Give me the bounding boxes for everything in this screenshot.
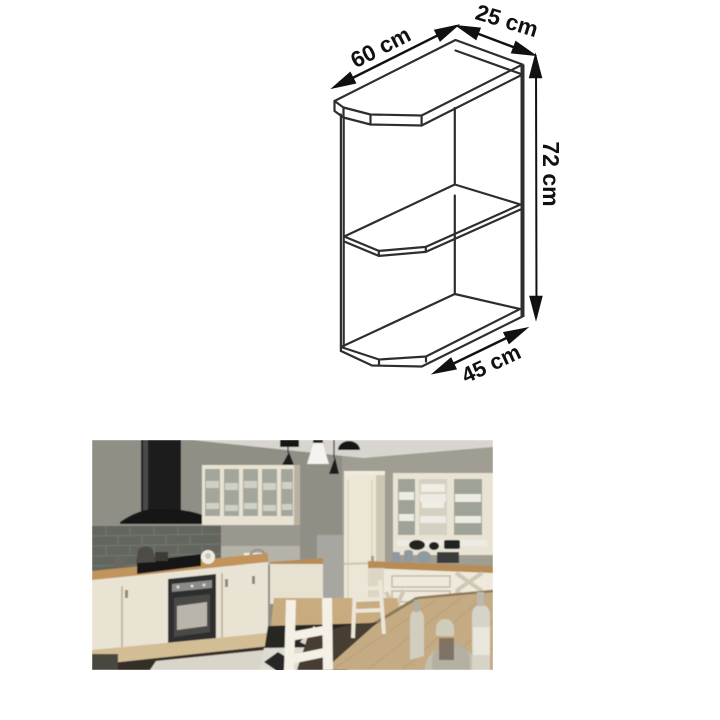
svg-text:72 cm: 72 cm (538, 141, 564, 206)
